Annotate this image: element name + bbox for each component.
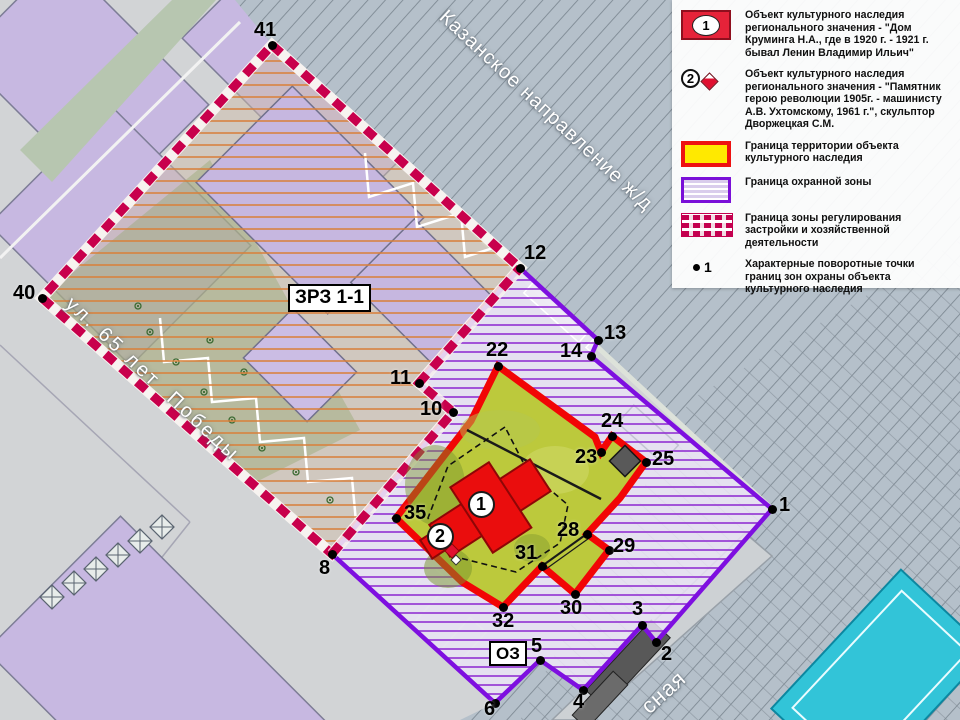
legend-item-text: Граница территории объекта культурного н… <box>745 140 952 165</box>
territory-boundary-icon <box>681 140 737 167</box>
legend-item-turning-point: 1Характерные поворотные точки границ зон… <box>681 258 952 296</box>
legend-item-text: Характерные поворотные точки границ зон … <box>745 258 952 296</box>
legend-item-text: Граница охранной зоны <box>745 176 871 189</box>
map-stage: Казанское направление ж/дул. 65 лет Побе… <box>0 0 960 720</box>
legend-panel: 1Объект культурного наследия регионально… <box>672 0 960 288</box>
legend-item-text: Объект культурного наследия региональног… <box>745 9 952 59</box>
regulation-zone-boundary-icon <box>681 212 737 237</box>
protection-zone-boundary-icon <box>681 176 737 203</box>
legend-items: 1Объект культурного наследия регионально… <box>681 9 952 296</box>
legend-item-territory-boundary: Граница территории объекта культурного н… <box>681 140 952 167</box>
legend-item-regulation-zone-boundary: Граница зоны регулирования застройки и х… <box>681 212 952 250</box>
heritage-object-2-icon: 2 <box>681 68 737 88</box>
legend-item-text: Объект культурного наследия региональног… <box>745 68 952 131</box>
legend-item-protection-zone-boundary: Граница охранной зоны <box>681 176 952 203</box>
legend-item-text: Граница зоны регулирования застройки и х… <box>745 212 952 250</box>
legend-item-heritage-object-1: 1Объект культурного наследия регионально… <box>681 9 952 59</box>
turning-point-icon: 1 <box>681 258 737 275</box>
heritage-object-1-icon: 1 <box>681 9 737 40</box>
legend-item-heritage-object-2: 2Объект культурного наследия регионально… <box>681 68 952 131</box>
